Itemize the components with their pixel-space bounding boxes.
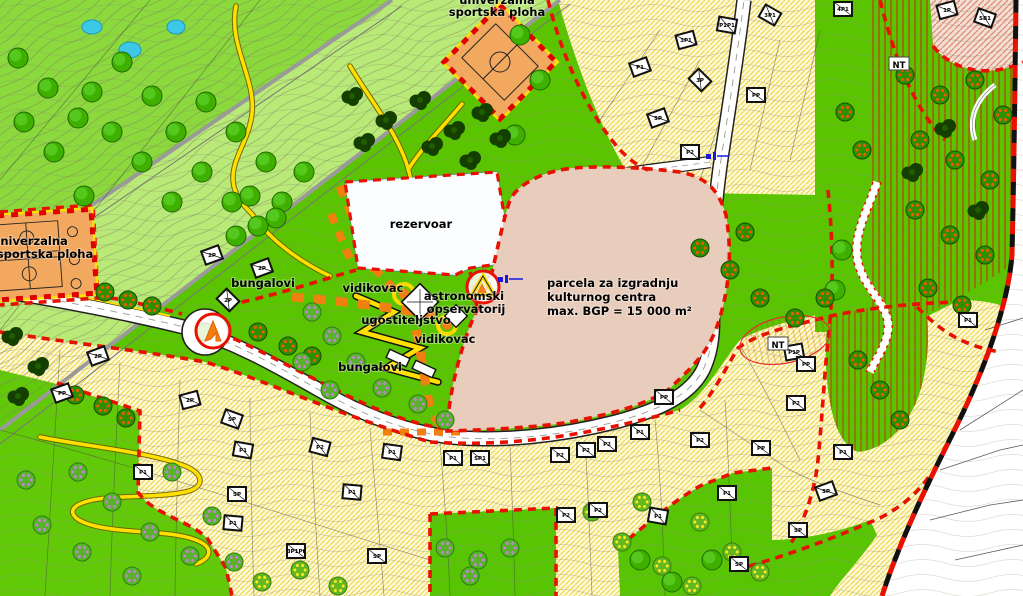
tree-icon: [836, 103, 854, 121]
building-label: P1: [348, 490, 356, 496]
building-label: SP: [233, 492, 241, 498]
tree-icon: [74, 186, 94, 206]
svg-text:NT: NT: [772, 341, 785, 351]
label-parcel-2: kulturnog centra: [547, 290, 656, 304]
building-marker: P2: [577, 443, 595, 457]
tree-icon: [226, 226, 246, 246]
tree-icon: [166, 122, 186, 142]
tree-icon: [303, 303, 321, 321]
building-marker: 3P1Pt: [287, 544, 306, 558]
tree-icon: [162, 192, 182, 212]
tree-icon: [291, 561, 309, 579]
label-reservoir: rezervoar: [390, 217, 453, 231]
building-marker: P2: [557, 508, 575, 522]
building-label: P1: [388, 450, 396, 456]
building-label: 2P: [94, 354, 102, 360]
label-bungalows-2: bungalovi: [338, 360, 402, 374]
tree-icon: [68, 108, 88, 128]
tree-icon: [323, 327, 341, 345]
building-label: SP: [373, 554, 381, 560]
building-label: P1: [636, 430, 644, 436]
building-marker: P2: [681, 145, 699, 159]
tree-icon: [461, 567, 479, 585]
tree-icon: [94, 397, 112, 415]
building-label: SP1: [474, 456, 486, 462]
building-label: P1: [839, 450, 847, 456]
tree-icon: [436, 411, 454, 429]
building-label: P2: [316, 445, 324, 451]
tree-icon: [721, 261, 739, 279]
nt-marker-1: NT: [889, 57, 909, 71]
tree-icon: [911, 131, 929, 149]
tree-icon: [196, 92, 216, 112]
tree-icon: [253, 573, 271, 591]
tree-icon: [849, 351, 867, 369]
zoning-map: P13P1P1P13P14P11PSB13PSPPPP22P2P2PPP2PP1…: [0, 0, 1023, 596]
tree-icon: [832, 240, 852, 260]
building-marker: P1: [648, 508, 668, 525]
tree-icon: [44, 142, 64, 162]
building-marker: P1: [834, 445, 852, 459]
tree-icon: [240, 186, 260, 206]
tree-icon: [994, 106, 1012, 124]
tree-icon: [530, 70, 550, 90]
building-label: P1P1: [719, 23, 735, 29]
building-label: P1: [139, 470, 147, 476]
tree-icon: [17, 471, 35, 489]
tree-icon: [222, 192, 242, 212]
building-label: 2P: [258, 266, 266, 272]
building-label: P2: [582, 448, 590, 454]
building-marker: P1: [233, 442, 253, 459]
tree-icon: [691, 239, 709, 257]
tree-icon: [919, 279, 937, 297]
building-marker: P1: [223, 515, 242, 531]
tree-icon: [510, 25, 530, 45]
tree-icon: [981, 171, 999, 189]
tree-icon: [653, 557, 671, 575]
building-marker: SP: [730, 557, 748, 571]
building-marker: P1: [382, 444, 402, 460]
building-label: P1: [449, 456, 457, 462]
tree-icon: [953, 296, 971, 314]
tree-icon: [906, 201, 924, 219]
building-label: 2P: [208, 253, 216, 259]
tree-icon: [736, 223, 754, 241]
building-marker: SP1: [471, 451, 489, 465]
building-marker: P1: [134, 465, 152, 479]
tree-icon: [142, 86, 162, 106]
building-label: PP: [802, 362, 810, 368]
label-bungalows-1: bungalovi: [231, 276, 295, 290]
building-marker: 4P1: [834, 2, 852, 16]
building-marker: PP: [752, 441, 770, 455]
tree-icon: [691, 513, 709, 531]
label-viewpoint-2: vidikovac: [415, 332, 476, 346]
tree-icon: [613, 533, 631, 551]
building-marker: P1: [342, 484, 361, 500]
building-label: 2P: [186, 398, 194, 404]
tree-icon: [329, 577, 347, 595]
tree-icon: [266, 208, 286, 228]
tree-icon: [73, 543, 91, 561]
tree-icon: [256, 152, 276, 172]
label-parcel-1: parcela za izgradnju: [547, 276, 678, 290]
tree-icon: [69, 463, 87, 481]
tree-icon: [248, 216, 268, 236]
tree-icon: [293, 353, 311, 371]
tree-icon: [786, 309, 804, 327]
tree-icon: [141, 523, 159, 541]
building-marker: PP: [747, 88, 765, 102]
tree-icon: [941, 226, 959, 244]
building-label: 4P1: [837, 7, 849, 13]
plan-map-canvas[interactable]: P13P1P1P13P14P11PSB13PSPPPP22P2P2PPP2PP1…: [0, 0, 1023, 596]
label-hospitality: ugostiteljstvo: [361, 313, 451, 327]
tree-icon: [163, 463, 181, 481]
building-label: SP: [228, 417, 236, 423]
label-sports-left-2: sportska ploha: [0, 247, 93, 261]
building-label: P1: [229, 521, 237, 527]
building-marker: P1: [444, 451, 462, 465]
building-label: P2: [594, 508, 602, 514]
tree-icon: [294, 162, 314, 182]
building-marker: SP: [228, 487, 246, 501]
tree-icon: [702, 550, 722, 570]
building-marker: P2: [551, 448, 569, 462]
building-label: SP: [794, 528, 802, 534]
building-label: SP: [735, 562, 743, 568]
building-label: P1: [239, 448, 247, 454]
building-label: P1: [723, 491, 731, 497]
tree-icon: [14, 112, 34, 132]
tree-icon: [279, 337, 297, 355]
tree-icon: [117, 409, 135, 427]
building-marker: P2: [691, 433, 709, 447]
building-marker: P2: [589, 503, 607, 517]
building-label: P2: [696, 438, 704, 444]
tree-icon: [226, 122, 246, 142]
building-marker: P1: [631, 425, 649, 439]
tree-icon: [96, 283, 114, 301]
label-sports-top-2: sportska ploha: [449, 5, 545, 19]
tree-icon: [249, 323, 267, 341]
tree-icon: [751, 563, 769, 581]
tree-icon: [501, 539, 519, 557]
monument-symbol: [196, 314, 230, 348]
tree-icon: [409, 395, 427, 413]
building-label: P1P: [788, 350, 800, 356]
tree-icon: [816, 289, 834, 307]
tree-icon: [931, 86, 949, 104]
building-marker: PP: [797, 357, 815, 371]
building-label: P2: [562, 513, 570, 519]
svg-text:NT: NT: [893, 61, 906, 71]
building-label: PP: [660, 395, 668, 401]
label-viewpoint-1: vidikovac: [343, 281, 404, 295]
tree-icon: [683, 577, 701, 595]
tree-icon: [976, 246, 994, 264]
building-label: P1: [654, 514, 662, 520]
building-label: P1: [964, 318, 972, 324]
building-label: P2: [603, 442, 611, 448]
tree-icon: [123, 567, 141, 585]
tree-icon: [871, 381, 889, 399]
tree-icon: [143, 297, 161, 315]
building-marker: P1: [718, 486, 736, 500]
tree-icon: [181, 547, 199, 565]
building-label: SB1: [979, 16, 991, 22]
tree-icon: [630, 550, 650, 570]
building-marker: SP: [789, 523, 807, 537]
tree-icon: [373, 379, 391, 397]
tree-icon: [132, 152, 152, 172]
tree-icon: [38, 78, 58, 98]
tree-icon: [853, 141, 871, 159]
building-label: SP: [822, 489, 830, 495]
tree-icon: [321, 381, 339, 399]
building-label: PP: [752, 93, 760, 99]
tree-icon: [103, 493, 121, 511]
tree-icon: [436, 539, 454, 557]
building-marker: P2: [787, 396, 805, 410]
building-label: PP: [757, 446, 765, 452]
building-label: 3P: [696, 78, 704, 84]
label-observatory-1: astronomski: [424, 289, 504, 303]
tree-icon: [751, 289, 769, 307]
building-label: P2: [686, 150, 694, 156]
building-label: PP: [58, 391, 66, 397]
tree-icon: [633, 493, 651, 511]
building-label: P2: [792, 401, 800, 407]
building-marker: SP: [368, 549, 386, 563]
building-label: 1P: [943, 8, 951, 14]
building-label: P2: [556, 453, 564, 459]
tree-icon: [82, 82, 102, 102]
tree-icon: [891, 411, 909, 429]
nt-marker-2: NT: [768, 337, 788, 351]
building-label: P1: [636, 65, 644, 71]
building-label: SP: [654, 116, 662, 122]
tree-icon: [225, 553, 243, 571]
tree-icon: [203, 507, 221, 525]
building-marker: P1P1: [717, 17, 737, 34]
building-label: 3P1: [764, 13, 776, 19]
building-marker: PP: [655, 390, 673, 404]
building-marker: P1: [959, 313, 977, 327]
tree-icon: [8, 48, 28, 68]
tree-icon: [192, 162, 212, 182]
building-label: 3P1Pt: [287, 549, 306, 555]
building-label: 3P1: [680, 38, 692, 44]
building-label: 2P: [224, 298, 232, 304]
tree-icon: [112, 52, 132, 72]
building-marker: P2: [598, 437, 616, 451]
tree-icon: [102, 122, 122, 142]
tree-icon: [946, 151, 964, 169]
tree-icon: [119, 291, 137, 309]
label-parcel-3: max. BGP = 15 000 m²: [547, 304, 692, 318]
tree-icon: [33, 516, 51, 534]
tree-icon: [966, 71, 984, 89]
label-sports-left-1: univerzalna: [0, 234, 68, 248]
tree-icon: [469, 551, 487, 569]
